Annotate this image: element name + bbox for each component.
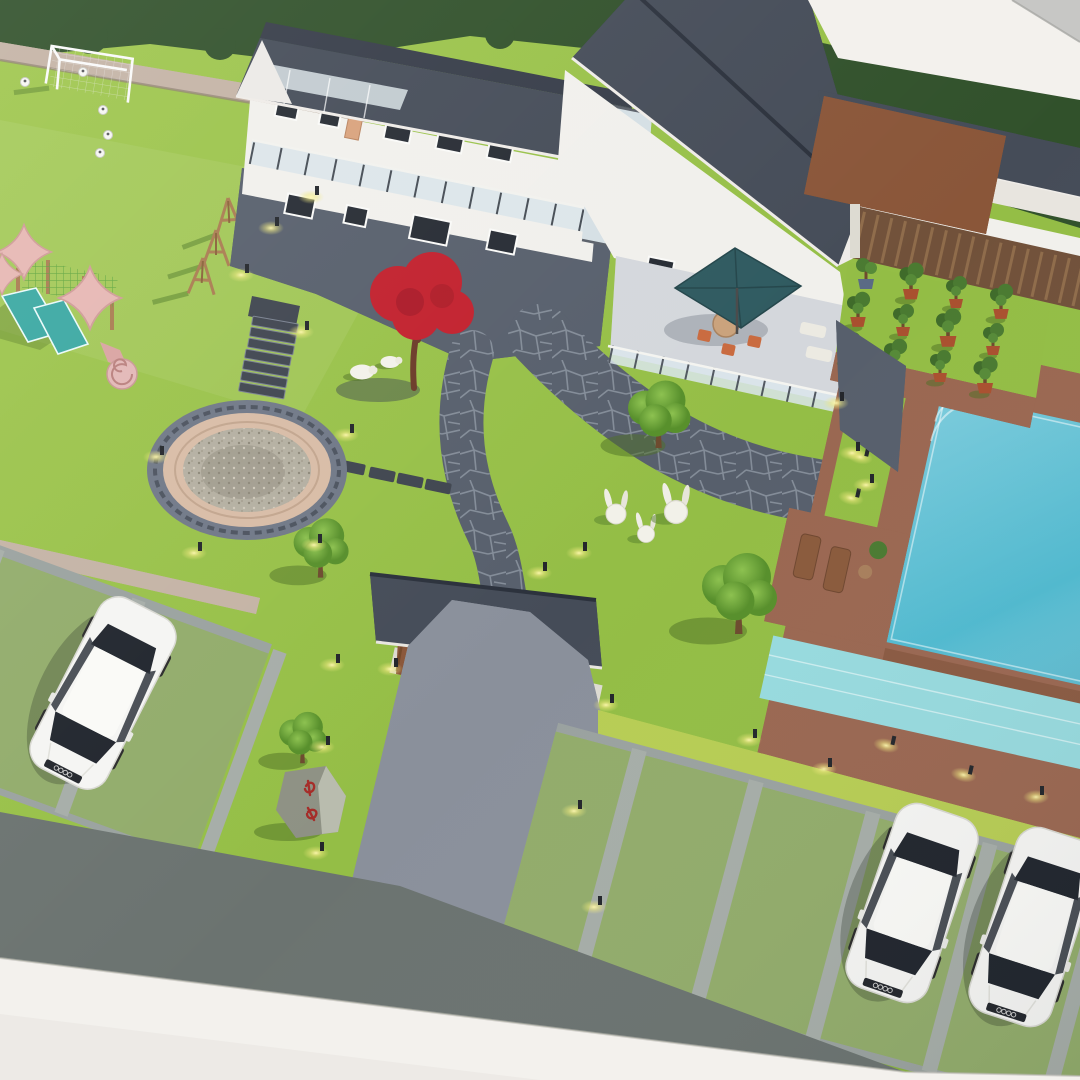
rendering-photo: Photograph of a printed 3D aerial render… xyxy=(0,0,1080,1080)
photo-grade xyxy=(0,0,1080,1080)
photo-of-print: Photograph of a printed 3D aerial render… xyxy=(0,0,1080,1080)
